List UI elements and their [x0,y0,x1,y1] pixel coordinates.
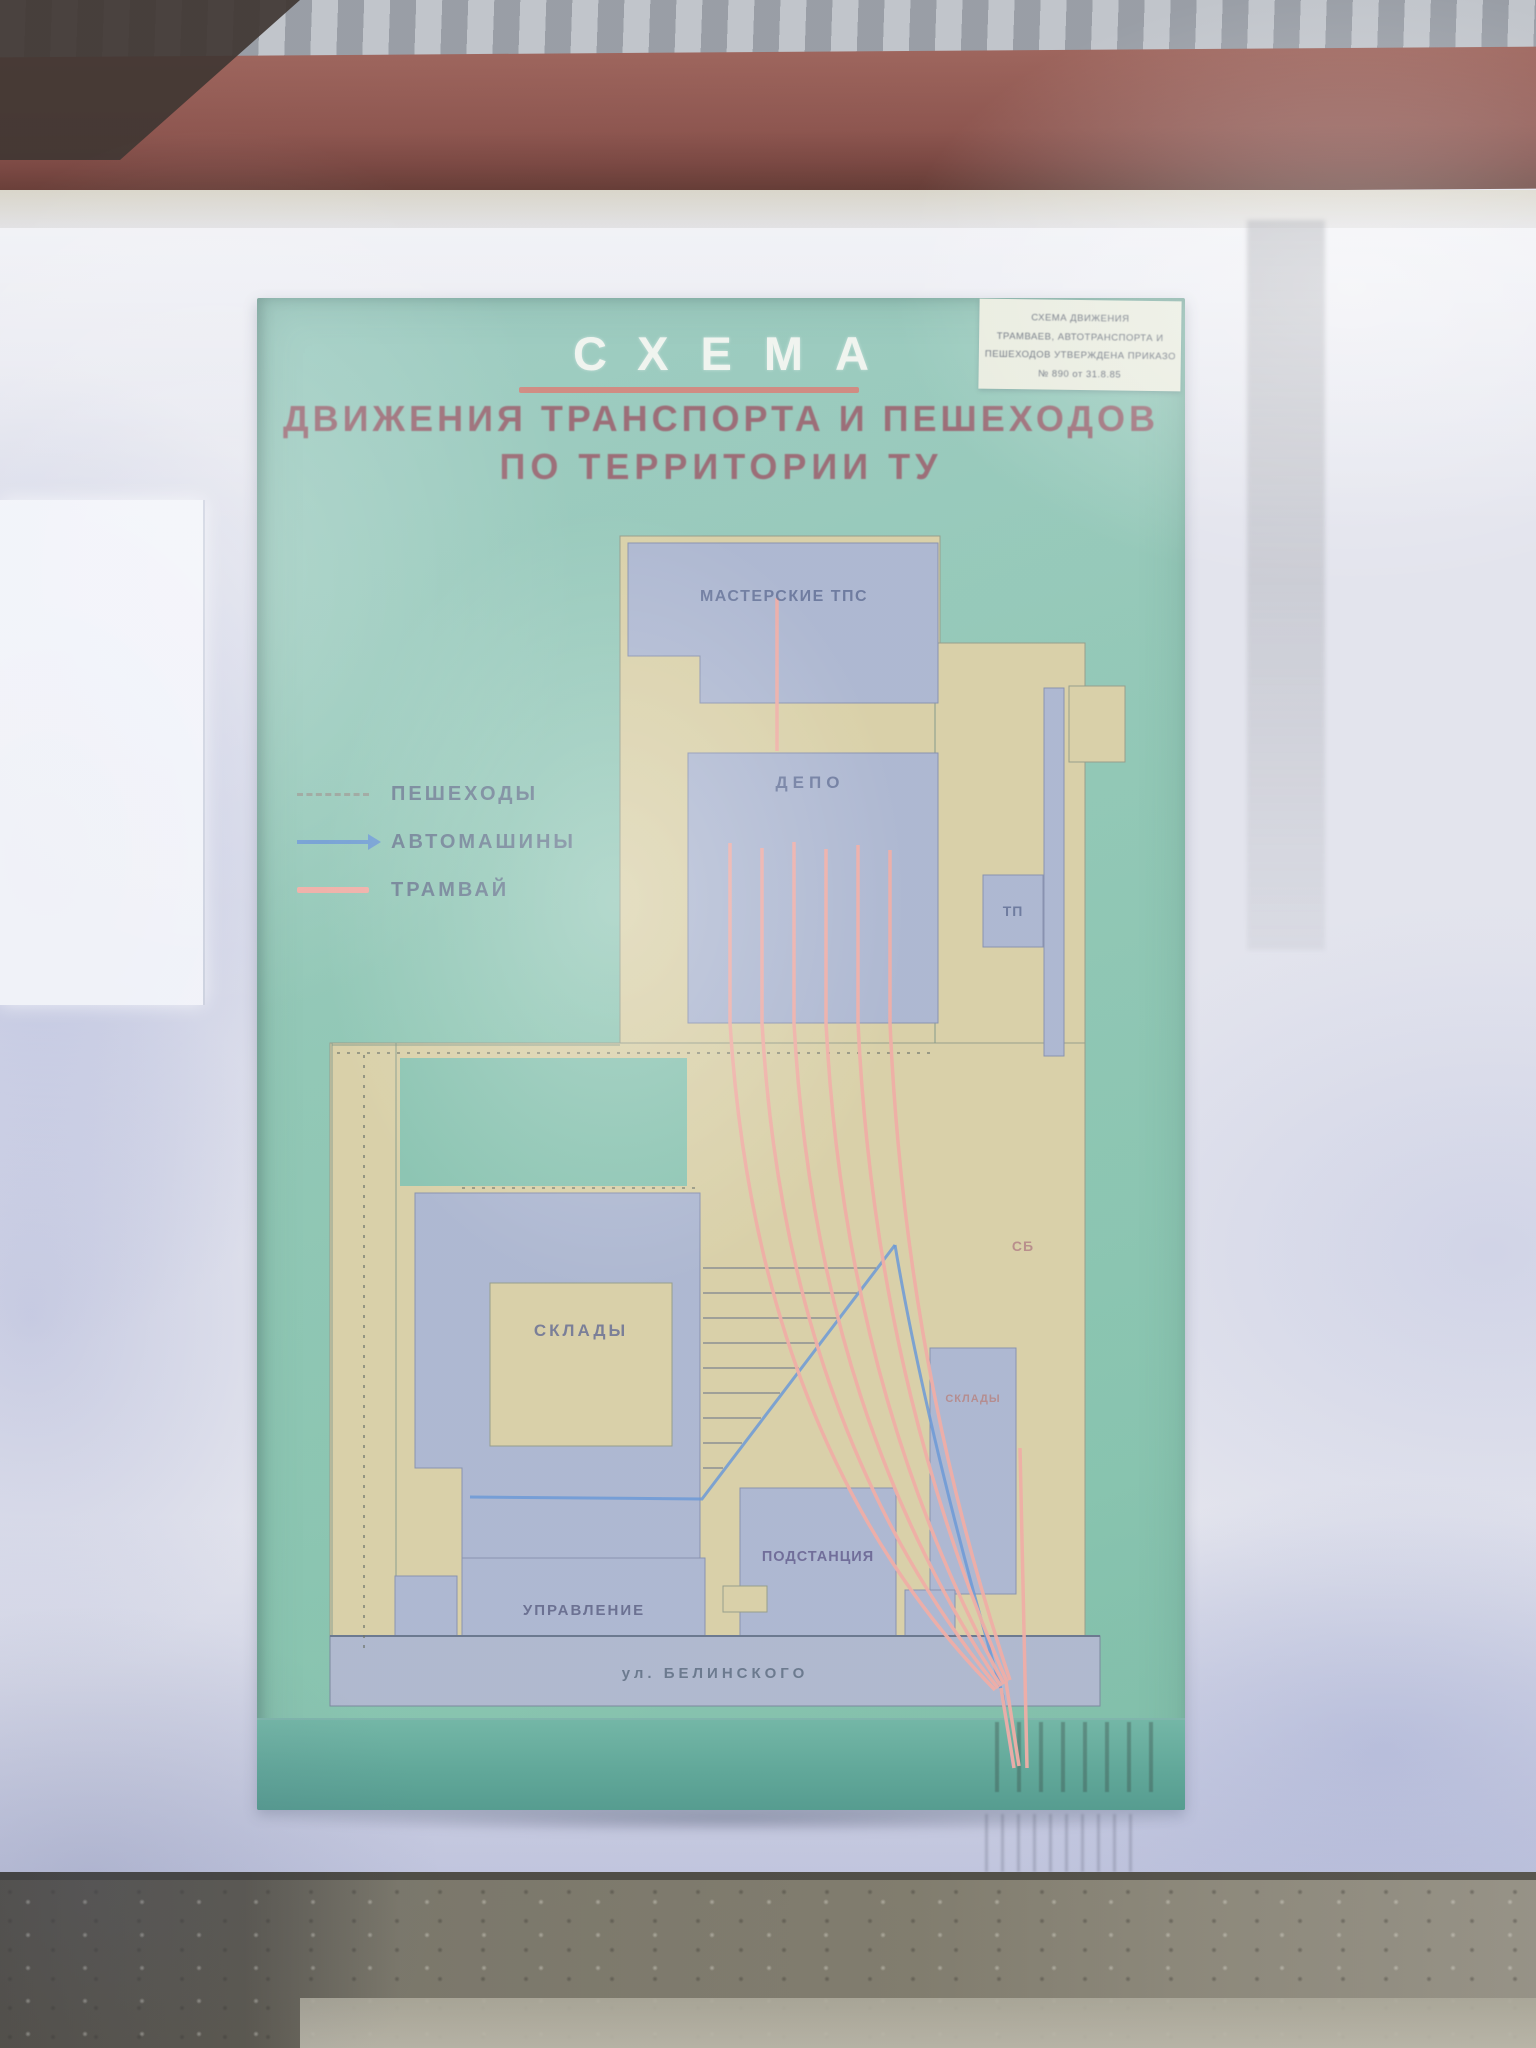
legend-label: ТРАМВАЙ [391,879,509,902]
tp-label: ТП [1003,903,1024,919]
dotted-line-symbol [297,793,369,796]
workshops-label: МАСТЕРСКИЕ ТПС [700,588,868,605]
territory-map: МАСТЕРСКИЕ ТПС ДЕПО ТП СБ СКЛАДЫ СКЛАДЫ … [257,298,1185,1808]
legend-item-pedestrians: ПЕШЕХОДЫ [297,770,557,818]
sign-subtitle-line1: ДВИЖЕНИЯ ТРАНСПОРТА И ПЕШЕХОДОВ [257,398,1185,440]
warehouses-right-label: СКЛАДЫ [945,1393,1000,1405]
photo-of-sign-on-wall: МАСТЕРСКИЕ ТПС ДЕПО ТП СБ СКЛАДЫ СКЛАДЫ … [0,0,1536,2048]
depot-label: ДЕПО [776,773,845,792]
map-small-yellow-box [1069,686,1125,762]
curb-edge [300,1998,1536,2048]
plaque-line: № 890 от 31.8.85 [984,364,1174,385]
scheme-sign-board: МАСТЕРСКИЕ ТПС ДЕПО ТП СБ СКЛАДЫ СКЛАДЫ … [257,298,1185,1810]
warehouses-courtyard [490,1283,672,1446]
small-building-left [395,1576,457,1636]
map-legend: ПЕШЕХОДЫ АВТОМАШИНЫ ТРАМВАЙ [297,770,557,914]
wall-gray-streak [1247,220,1325,950]
depot-building [688,753,938,1023]
street-label: ул. БЕЛИНСКОГО [622,1665,809,1682]
sign-subtitle-line2: ПО ТЕРРИТОРИИ ТУ [257,446,1185,488]
legend-item-cars: АВТОМАШИНЫ [297,818,557,866]
pink-line-symbol [297,887,369,893]
approval-plaque: СХЕМА ДВИЖЕНИЯ ТРАМВАЕВ, АВТОТРАНСПОРТА … [978,299,1181,392]
small-yellow-gap [723,1586,767,1612]
title-red-underline [519,387,859,393]
legend-label: ПЕШЕХОДЫ [391,783,538,806]
sb-label: СБ [1012,1238,1034,1254]
legend-item-tram: ТРАМВАЙ [297,866,557,914]
red-roof-beam [0,47,1536,200]
substation-label: ПОДСТАНЦИЯ [762,1549,874,1565]
wall-stain-under-sign [985,1814,1140,1872]
blue-arrow-line-symbol [297,840,369,844]
legend-label: АВТОМАШИНЫ [391,831,576,854]
administration-building [462,1558,705,1636]
administration-label: УПРАВЛЕНИЕ [523,1602,645,1619]
boundary-wall-strip [1044,688,1064,1056]
map-inner-green-patch [400,1058,687,1186]
wall-light-panel [0,500,205,1005]
warehouses-main-label: СКЛАДЫ [534,1321,628,1340]
